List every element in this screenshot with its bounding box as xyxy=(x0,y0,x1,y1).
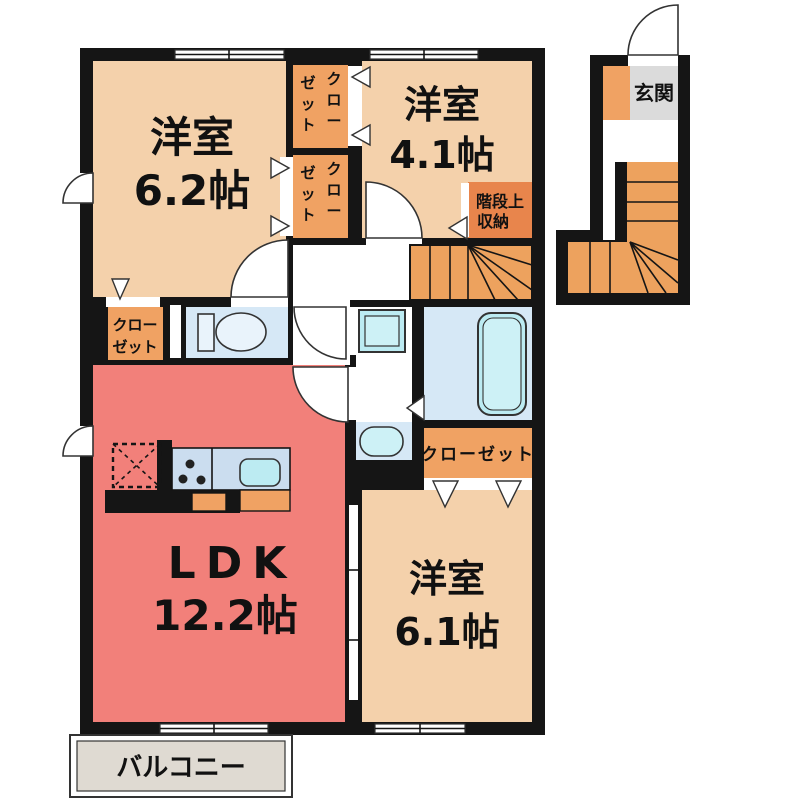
closet-west-line2: ゼット xyxy=(112,338,157,356)
closet-upper-south-label-col1: クロー xyxy=(326,160,341,220)
kitchen-cabinet-2 xyxy=(240,490,290,511)
bathtub-icon xyxy=(478,313,526,415)
stair-storage-line1: 階段上 xyxy=(476,192,524,211)
floor-plan-canvas: 洋室 6.2帖 洋室 4.1帖 LDK 12.2帖 洋室 6.1帖 バルコニー … xyxy=(0,0,800,800)
kitchen-sink-icon xyxy=(240,459,280,486)
toilet-door xyxy=(170,305,181,358)
washing-machine-icon xyxy=(359,310,405,352)
bedroom-nw-size: 6.2帖 xyxy=(134,166,250,215)
closet-upper-north-label-col2: ゼット xyxy=(300,74,315,134)
bedroom-se-name: 洋室 xyxy=(409,557,485,601)
stove-burner-1 xyxy=(186,460,195,469)
window-bedroom-ne xyxy=(370,50,478,59)
stove-burner-3 xyxy=(197,476,206,485)
west-door-arc-1 xyxy=(63,173,93,203)
balcony-label: バルコニー xyxy=(116,753,245,783)
bedroom-nw-door-opening xyxy=(231,297,288,307)
window-ldk-balcony xyxy=(160,724,268,733)
closet-west-door-opening xyxy=(106,297,160,307)
entry-door-arc xyxy=(628,5,678,55)
window-bedroom-se xyxy=(375,724,465,733)
bedroom-se-size: 6.1帖 xyxy=(394,610,499,654)
closet-upper-north-label-col1: クロー xyxy=(326,70,341,130)
closet-east-label: クローゼット xyxy=(421,444,535,465)
entry-threshold xyxy=(628,55,678,66)
sliding-door-strip xyxy=(349,505,358,700)
bedroom-nw-name: 洋室 xyxy=(150,113,234,162)
entry-step-strip xyxy=(603,66,630,120)
genkan-label: 玄関 xyxy=(634,81,674,105)
stair-storage-line2: 収納 xyxy=(477,212,509,231)
closet-upper-south-label-col2: ゼット xyxy=(300,164,315,224)
west-door-arc-2 xyxy=(63,426,93,456)
kitchen-cabinet-1 xyxy=(192,493,226,511)
window-bedroom-nw xyxy=(175,50,284,59)
closet-west-line1: クロー xyxy=(112,316,157,334)
bedroom-ne-size: 4.1帖 xyxy=(389,133,494,177)
entry-hall-floor xyxy=(603,120,678,162)
floor-plan: 洋室 6.2帖 洋室 4.1帖 LDK 12.2帖 洋室 6.1帖 バルコニー … xyxy=(0,0,800,800)
ldk-size: 12.2帖 xyxy=(152,591,298,640)
bedroom-ne-name: 洋室 xyxy=(404,83,480,127)
stove-burner-2 xyxy=(179,475,188,484)
toilet-icon xyxy=(198,313,266,351)
wash-basin-icon xyxy=(360,427,403,456)
bedroom-se-floor xyxy=(362,490,532,722)
inner-stairs-floor xyxy=(410,245,532,300)
ldk-name: LDK xyxy=(168,538,297,589)
hallway-floor xyxy=(293,245,410,300)
entry-hall-nook xyxy=(603,162,615,240)
bedroom-ne-door-opening xyxy=(366,238,422,245)
